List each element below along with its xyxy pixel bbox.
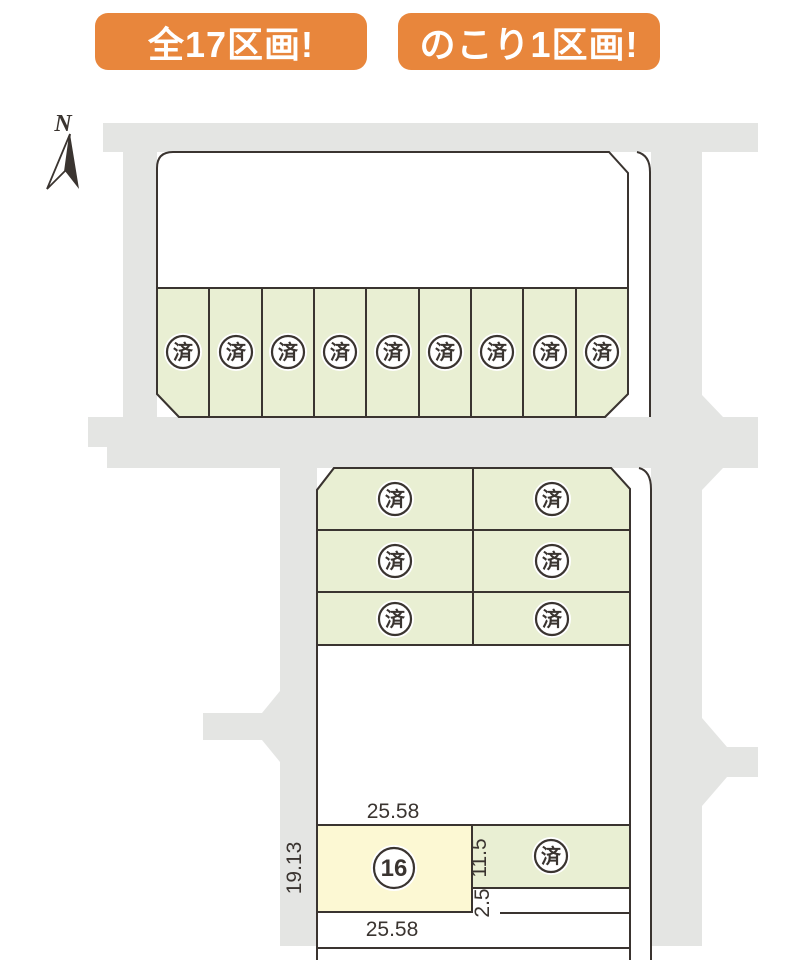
dim-width-top: 25.58 [367, 800, 420, 823]
svg-text:済: 済 [173, 340, 194, 364]
sold-badges-north: 済 済 済 済 済 済 済 済 済 [164, 333, 621, 371]
sold-badge: 済 [164, 333, 202, 371]
block-south: 済 済 済 済 済 済 16 済 25.58 25.58 19.13 11.5 … [283, 468, 651, 960]
lot-map-page: { "badges": { "total": { "label": "全17区画… [0, 0, 800, 960]
road-stub-right [702, 718, 758, 806]
dim-depth-left: 19.13 [283, 842, 306, 895]
sold-badge: 済 [374, 333, 412, 371]
sold-badge: 済 [217, 333, 255, 371]
road-left-upper [123, 152, 157, 417]
sold-badge: 済 [269, 333, 307, 371]
svg-text:済: 済 [542, 607, 563, 631]
sold-badge: 済 [532, 837, 570, 875]
road-right [651, 152, 702, 946]
sold-badge: 済 [321, 333, 359, 371]
block-north: 済 済 済 済 済 済 済 済 済 [157, 152, 650, 417]
available-lot-badge: 16 [371, 845, 417, 891]
dim-path-width: 2.5 [471, 888, 494, 917]
svg-text:済: 済 [592, 340, 613, 364]
road-flare-right-lower [702, 468, 723, 490]
svg-text:済: 済 [383, 340, 404, 364]
verge-line-south [639, 468, 651, 960]
sold-badge: 済 [531, 333, 569, 371]
svg-text:済: 済 [278, 340, 299, 364]
svg-text:済: 済 [330, 340, 351, 364]
compass: N [47, 111, 79, 189]
compass-n-label: N [53, 111, 73, 137]
sold-badge: 済 [376, 480, 414, 518]
svg-text:済: 済 [542, 487, 563, 511]
available-lot-number: 16 [381, 855, 408, 882]
svg-text:済: 済 [540, 340, 561, 364]
svg-text:済: 済 [435, 340, 456, 364]
svg-text:済: 済 [487, 340, 508, 364]
svg-text:済: 済 [385, 487, 406, 511]
sold-badge: 済 [533, 542, 571, 580]
site-plan-svg: N 済 済 済 済 済 済 済 済 済 [0, 0, 800, 960]
sold-badge: 済 [533, 480, 571, 518]
sold-badge: 済 [376, 600, 414, 638]
svg-text:済: 済 [542, 549, 563, 573]
dim-depth-right: 11.5 [468, 838, 491, 877]
svg-text:済: 済 [385, 549, 406, 573]
dim-width-bottom: 25.58 [366, 918, 419, 941]
road-stub-left [203, 691, 280, 762]
sold-badge: 済 [533, 600, 571, 638]
road-top [103, 123, 758, 152]
sold-badge: 済 [376, 542, 414, 580]
sold-badge: 済 [583, 333, 621, 371]
svg-text:済: 済 [385, 607, 406, 631]
sold-badge: 済 [478, 333, 516, 371]
svg-text:済: 済 [541, 844, 562, 868]
verge-line-north [637, 152, 650, 417]
svg-text:済: 済 [226, 340, 247, 364]
sold-badge: 済 [426, 333, 464, 371]
road-flare-right-upper [702, 395, 723, 417]
